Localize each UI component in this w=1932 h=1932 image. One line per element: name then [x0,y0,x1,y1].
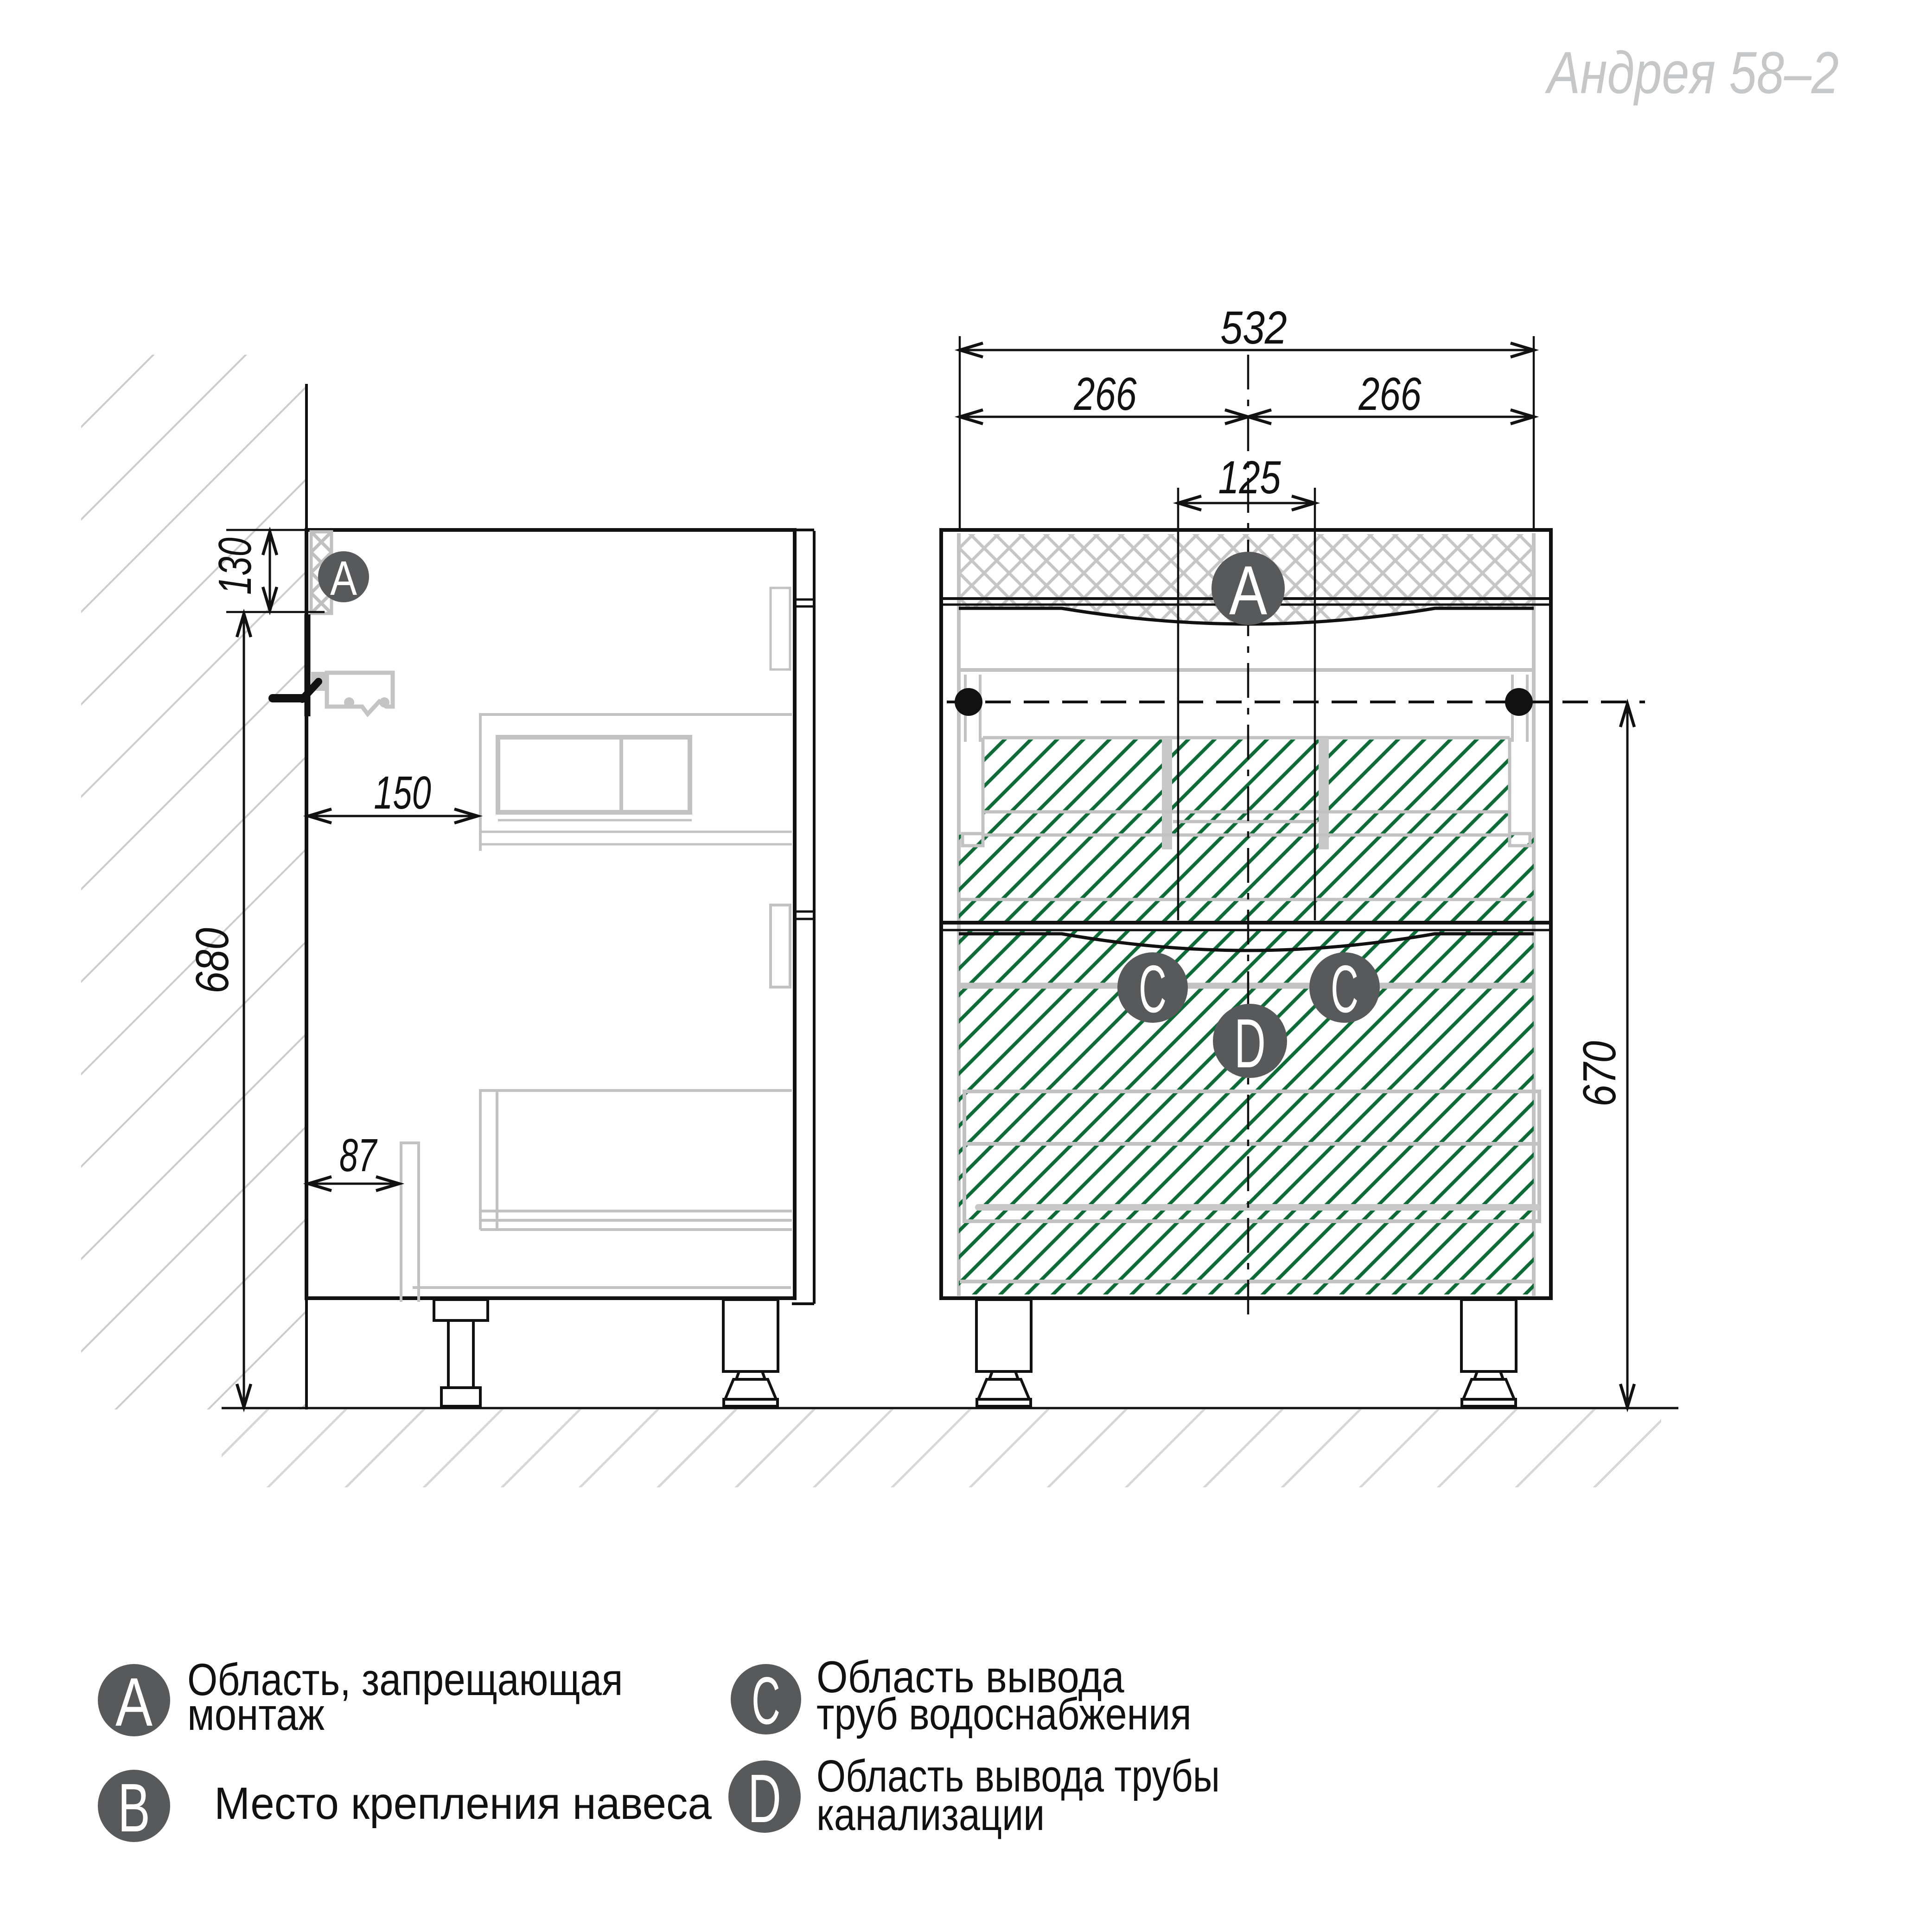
svg-text:266: 266 [1074,369,1137,420]
svg-text:C: C [752,1663,780,1738]
svg-text:A: A [330,551,357,606]
svg-text:A: A [1229,551,1267,629]
svg-text:130: 130 [209,537,261,595]
svg-text:125: 125 [1218,452,1281,504]
svg-text:B: B [118,1770,150,1846]
svg-text:680: 680 [186,928,238,994]
svg-text:D: D [1234,1004,1266,1082]
svg-text:монтаж: монтаж [187,1690,325,1740]
svg-text:C: C [1139,951,1167,1027]
svg-text:канализации: канализации [816,1790,1045,1840]
svg-text:87: 87 [339,1129,378,1181]
svg-text:A: A [115,1664,153,1741]
svg-text:C: C [1331,951,1358,1027]
svg-text:D: D [748,1760,781,1837]
svg-text:труб водоснабжения: труб водоснабжения [816,1689,1192,1739]
svg-text:670: 670 [1573,1041,1625,1107]
svg-text:Место крепления навеса: Место крепления навеса [214,1779,712,1829]
svg-text:266: 266 [1358,369,1422,420]
svg-text:150: 150 [374,766,431,819]
svg-text:Андрея 58–2: Андрея 58–2 [1545,40,1839,106]
svg-text:532: 532 [1220,302,1287,354]
